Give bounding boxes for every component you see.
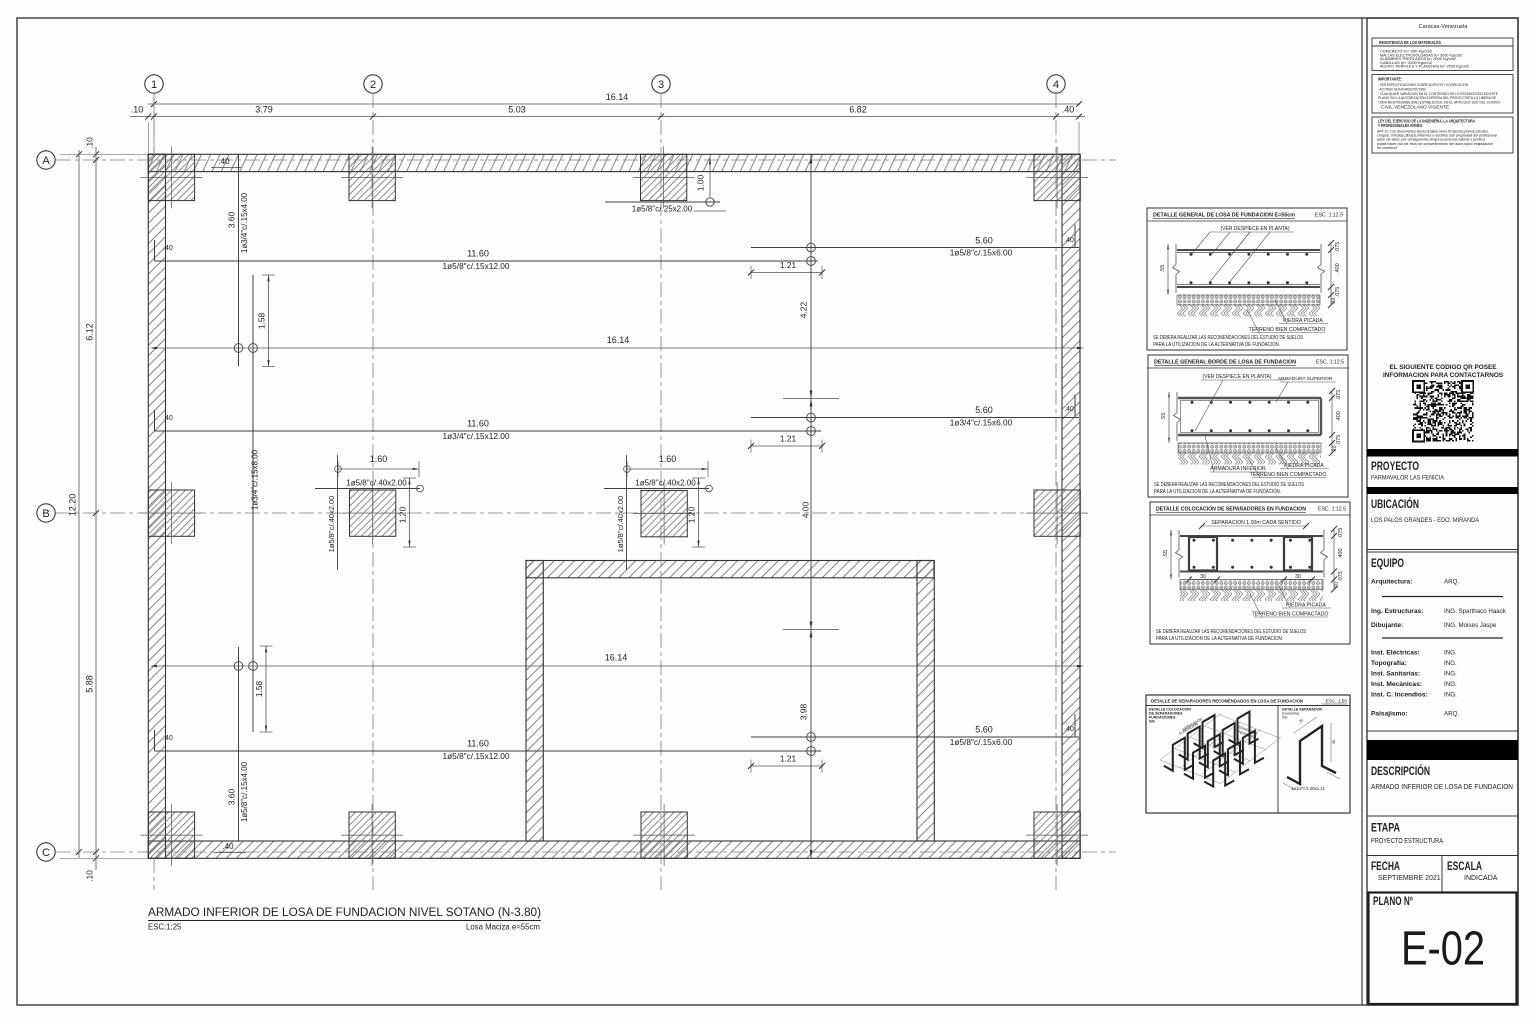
- svg-text:FECHA: FECHA: [1371, 861, 1400, 873]
- svg-text:11.60: 11.60: [467, 739, 489, 749]
- svg-text:1ø3/4"c/.15x12.00: 1ø3/4"c/.15x12.00: [442, 431, 509, 441]
- svg-text:PLANO N°: PLANO N°: [1373, 896, 1413, 908]
- svg-text:DETALLE GENERAL BORDE DE LOSA: DETALLE GENERAL BORDE DE LOSA DE FUNDACI…: [1154, 360, 1296, 366]
- svg-text:1ø5/8''c/.40x2.00: 1ø5/8''c/.40x2.00: [635, 479, 696, 488]
- svg-text:1ø5/8''c/.40x2.00: 1ø5/8''c/.40x2.00: [327, 496, 336, 553]
- svg-text:1ø3/4"c/.15x8.00: 1ø3/4"c/.15x8.00: [251, 449, 260, 510]
- svg-text:5.88: 5.88: [85, 675, 95, 693]
- svg-text:4.00: 4.00: [801, 501, 811, 518]
- svg-text:ESC:1:25: ESC:1:25: [148, 923, 182, 932]
- svg-text:PROYECTO: PROYECTO: [1371, 461, 1419, 473]
- svg-text:3.60: 3.60: [227, 211, 237, 228]
- svg-text:INDICADA: INDICADA: [1464, 875, 1498, 882]
- svg-text:1: 1: [151, 79, 157, 91]
- svg-text:SEPTIEMBRE 2021: SEPTIEMBRE 2021: [1378, 875, 1441, 882]
- svg-text:.075: .075: [1335, 287, 1341, 298]
- svg-text:2: 2: [370, 79, 376, 91]
- svg-text:UBICACIÓN: UBICACIÓN: [1371, 498, 1419, 511]
- svg-text:DESCRIPCIÓN: DESCRIPCIÓN: [1371, 765, 1430, 778]
- svg-text:LOS PALOS GRANDES - EDO. MIRAN: LOS PALOS GRANDES - EDO. MIRANDA: [1371, 517, 1480, 524]
- svg-text:ESC. 1:12.5: ESC. 1:12.5: [1318, 507, 1346, 513]
- svg-text:ING. Sparthaco Haack: ING. Sparthaco Haack: [1444, 608, 1507, 615]
- svg-text:4: 4: [1053, 79, 1059, 91]
- svg-text:TERRENO BIEN COMPACTADO: TERRENO BIEN COMPACTADO: [1249, 327, 1326, 333]
- svg-text:E-02: E-02: [1401, 922, 1485, 975]
- svg-text:6.12: 6.12: [85, 323, 95, 341]
- svg-text:PARA LA UTILIZACION DE LA ALTE: PARA LA UTILIZACION DE LA ALTERNATIVA DE…: [1153, 342, 1280, 348]
- svg-text:Losa Maciza e=55cm: Losa Maciza e=55cm: [466, 923, 540, 932]
- svg-text:1.60: 1.60: [659, 454, 677, 464]
- svg-text:ING. Moises Jaspe: ING. Moises Jaspe: [1444, 622, 1497, 629]
- svg-text:30: 30: [1295, 574, 1301, 580]
- svg-text:ESC. 1:12.5: ESC. 1:12.5: [1315, 213, 1343, 219]
- svg-text:1.58: 1.58: [254, 681, 264, 698]
- svg-text:1ø5/8"c/.15x4.00: 1ø5/8"c/.15x4.00: [240, 761, 249, 822]
- svg-text:DETALLE DE SEPARADORES RECOMEN: DETALLE DE SEPARADORES RECOMENDADOS EN L…: [1151, 699, 1303, 705]
- svg-text:.10: .10: [1332, 445, 1338, 452]
- svg-text:1ø3/4"c/.15x4.00: 1ø3/4"c/.15x4.00: [240, 192, 249, 253]
- svg-text:.40: .40: [218, 157, 230, 166]
- svg-text:PIEDRA PICADA: PIEDRA PICADA: [1284, 463, 1324, 469]
- svg-text:30: 30: [1200, 574, 1206, 580]
- svg-text:1.21: 1.21: [780, 434, 797, 444]
- svg-text:6.82: 6.82: [849, 105, 867, 115]
- svg-text:.400: .400: [1336, 411, 1342, 422]
- svg-text:ING.: ING.: [1444, 692, 1457, 699]
- svg-text:.400: .400: [1335, 263, 1341, 274]
- svg-text:ING.: ING.: [1444, 681, 1457, 688]
- svg-text:DETALLE GENERAL DE LOSA DE FUN: DETALLE GENERAL DE LOSA DE FUNDACION E=5…: [1153, 213, 1295, 219]
- svg-text:ARMADURA SUPERIOR: ARMADURA SUPERIOR: [1278, 376, 1333, 382]
- svg-text:Inst. Eléctricas:: Inst. Eléctricas:: [1371, 650, 1420, 657]
- svg-text:1.20: 1.20: [398, 506, 408, 523]
- svg-text:ING.: ING.: [1444, 671, 1457, 678]
- svg-text:ESCALA: ESCALA: [1447, 861, 1482, 873]
- svg-text:1.21: 1.21: [780, 260, 797, 270]
- svg-text:ARMADO INFERIOR DE LOSA DE FUN: ARMADO INFERIOR DE LOSA DE FUNDACION: [1371, 782, 1513, 791]
- svg-text:1ø1/2"c/1.00x1.21: 1ø1/2"c/1.00x1.21: [1291, 786, 1326, 791]
- svg-text:3.79: 3.79: [255, 105, 273, 115]
- svg-text:TERRENO BIEN COMPACTADO: TERRENO BIEN COMPACTADO: [1252, 612, 1329, 618]
- svg-text:.40: .40: [222, 842, 234, 851]
- svg-text:Caracas-Venezuela: Caracas-Venezuela: [1419, 24, 1469, 30]
- svg-text:35: 35: [1332, 740, 1336, 744]
- svg-text:en contrario".: en contrario".: [1377, 146, 1399, 150]
- svg-text:B: B: [42, 508, 49, 520]
- svg-text:IMPORTANTE:: IMPORTANTE:: [1378, 77, 1402, 82]
- svg-text:INFORMACION PARA CONTACTARNOS: INFORMACION PARA CONTACTARNOS: [1383, 372, 1504, 379]
- svg-text:ESC. 1:50: ESC. 1:50: [1326, 699, 1348, 704]
- svg-text:PIEDRA PICADA: PIEDRA PICADA: [1283, 318, 1323, 324]
- svg-text:ARQ.: ARQ.: [1444, 579, 1459, 586]
- svg-text:ARMADO INFERIOR DE LOSA DE FUN: ARMADO INFERIOR DE LOSA DE FUNDACION NIV…: [148, 905, 541, 919]
- svg-text:.40: .40: [163, 735, 173, 742]
- svg-text:ACERO, PERFILES Y PLANCHAS fy: ACERO, PERFILES Y PLANCHAS fy= 2530 Kg/c…: [1380, 64, 1470, 69]
- svg-text:11.60: 11.60: [467, 419, 489, 429]
- svg-text:Inst. Sanitarias:: Inst. Sanitarias:: [1371, 671, 1420, 678]
- svg-text:Ing. Estructuras:: Ing. Estructuras:: [1371, 608, 1423, 615]
- svg-text:S/E: S/E: [1149, 720, 1155, 724]
- svg-text:PIEDRA PICADA: PIEDRA PICADA: [1286, 603, 1326, 609]
- svg-text:5.03: 5.03: [508, 105, 526, 115]
- svg-text:C: C: [42, 847, 50, 859]
- svg-text:DETALLE COLOCACION DE SEPARADO: DETALLE COLOCACION DE SEPARADORES EN FUN…: [1156, 507, 1306, 513]
- svg-text:1ø3/4"c/.15x6.00: 1ø3/4"c/.15x6.00: [950, 418, 1013, 428]
- svg-text:ING.: ING.: [1444, 650, 1457, 657]
- svg-text:3.60: 3.60: [227, 788, 237, 805]
- svg-text:1.20: 1.20: [687, 506, 697, 523]
- svg-text:.55: .55: [1161, 413, 1167, 421]
- svg-text:.40: .40: [1062, 105, 1075, 115]
- svg-text:ESC. 1:12.5: ESC. 1:12.5: [1316, 360, 1344, 366]
- svg-text:1ø5/8''c/.40x2.00: 1ø5/8''c/.40x2.00: [616, 496, 625, 553]
- svg-text:.55: .55: [1160, 265, 1166, 273]
- svg-text:CIVIL VENEZOLANO VIGENTE: CIVIL VENEZOLANO VIGENTE: [1381, 105, 1449, 111]
- svg-text:4.22: 4.22: [799, 301, 809, 318]
- svg-text:FARMAVALOR LAS FENICIA: FARMAVALOR LAS FENICIA: [1371, 475, 1445, 482]
- svg-text:.10: .10: [85, 137, 95, 149]
- svg-text:.075: .075: [1336, 390, 1342, 401]
- svg-text:(VER DESPIECE EN PLANTA): (VER DESPIECE EN PLANTA): [1202, 374, 1271, 380]
- svg-text:.40: .40: [1064, 237, 1074, 244]
- svg-text:SE DEBERA REALIZAR LAS RECOMEN: SE DEBERA REALIZAR LAS RECOMENDACIONES D…: [1153, 335, 1304, 341]
- svg-text:3.98: 3.98: [799, 703, 809, 720]
- svg-text:RESISTENCIA DE LOS MATERIAL: RESISTENCIA DE LOS MATERIALES: [1379, 40, 1441, 45]
- svg-text:SEPARACION 1.00m CADA SENTI: SEPARACION 1.00m CADA SENTIDO: [1211, 520, 1301, 526]
- svg-text:.55: .55: [1163, 550, 1169, 558]
- svg-text:5.60: 5.60: [975, 236, 993, 246]
- svg-text:1.58: 1.58: [257, 313, 267, 330]
- svg-text:PARA LA UTILIZACION DE LA ALTE: PARA LA UTILIZACION DE LA ALTERNATIVA DE…: [1154, 489, 1281, 495]
- svg-text:A: A: [42, 155, 50, 167]
- svg-text:ARQ.: ARQ.: [1444, 711, 1459, 718]
- svg-text:EQUIPO: EQUIPO: [1371, 558, 1404, 570]
- svg-text:.40: .40: [1064, 406, 1074, 413]
- svg-text:16.14: 16.14: [606, 92, 629, 102]
- svg-text:Y PROFESIONALES AFINES.: Y PROFESIONALES AFINES.: [1378, 123, 1423, 128]
- svg-text:TERRENO BIEN COMPACTADO: TERRENO BIEN COMPACTADO: [1250, 472, 1327, 478]
- svg-text:.40: .40: [1064, 726, 1074, 733]
- svg-text:.075: .075: [1338, 571, 1344, 582]
- svg-text:1.60: 1.60: [370, 454, 388, 464]
- svg-text:1.21: 1.21: [780, 754, 797, 764]
- svg-text:ETAPA: ETAPA: [1371, 823, 1400, 835]
- svg-text:5.60: 5.60: [975, 725, 993, 735]
- svg-text:ING.: ING.: [1444, 660, 1457, 667]
- svg-text:.400: .400: [1338, 549, 1344, 560]
- svg-text:(VER DESPIECE EN PLANTA): (VER DESPIECE EN PLANTA): [1220, 226, 1289, 232]
- svg-text:5.60: 5.60: [975, 405, 993, 415]
- svg-text:3: 3: [658, 79, 664, 91]
- svg-text:16.14: 16.14: [605, 653, 628, 663]
- svg-text:PARA LA UTILIZACION DE LA ALTE: PARA LA UTILIZACION DE LA ALTERNATIVA DE…: [1156, 636, 1283, 642]
- svg-text:.40: .40: [163, 245, 173, 252]
- svg-text:SE DEBERA REALIZAR LAS RECOMEN: SE DEBERA REALIZAR LAS RECOMENDACIONES D…: [1156, 629, 1307, 635]
- svg-text:PROYECTO ESTRUCTURA: PROYECTO ESTRUCTURA: [1371, 836, 1443, 845]
- svg-text:.075: .075: [1338, 528, 1344, 539]
- svg-text:.10: .10: [1331, 297, 1337, 304]
- svg-text:1ø5/8''c/.40x2.00: 1ø5/8''c/.40x2.00: [346, 479, 407, 488]
- svg-text:Topografía:: Topografía:: [1371, 660, 1407, 667]
- svg-text:TODA RESPONSABILIDAD ESTABLECI: TODA RESPONSABILIDAD ESTABLECIDA, EN EL …: [1378, 100, 1500, 105]
- svg-text:1ø5/8"c/.15x6.00: 1ø5/8"c/.15x6.00: [950, 248, 1013, 258]
- svg-text:Inst. Mecánicas:: Inst. Mecánicas:: [1371, 681, 1422, 688]
- svg-text:1ø5/8"c/.15x12.00: 1ø5/8"c/.15x12.00: [442, 751, 509, 761]
- svg-text:Paisajismo:: Paisajismo:: [1371, 711, 1408, 718]
- svg-text:Dibujante:: Dibujante:: [1371, 622, 1403, 629]
- svg-text:Inst. C. Incendios:: Inst. C. Incendios:: [1371, 692, 1428, 699]
- svg-text:.075: .075: [1335, 242, 1341, 253]
- svg-text:1.00: 1.00: [696, 174, 706, 191]
- svg-text:16.14: 16.14: [607, 335, 630, 345]
- svg-text:.10: .10: [131, 105, 144, 115]
- svg-text:11.60: 11.60: [467, 249, 489, 259]
- svg-text:S/E: S/E: [1282, 716, 1288, 720]
- svg-text:.40: .40: [163, 415, 173, 422]
- svg-text:SE DEBERA REALIZAR LAS RECOMEN: SE DEBERA REALIZAR LAS RECOMENDACIONES D…: [1154, 482, 1305, 488]
- svg-text:1ø5/8"c/.15x12.00: 1ø5/8"c/.15x12.00: [442, 261, 509, 271]
- svg-text:Arquitectura:: Arquitectura:: [1371, 579, 1412, 586]
- svg-text:.10: .10: [1334, 582, 1340, 589]
- svg-text:.10: .10: [85, 870, 95, 882]
- svg-text:1ø5/8''c/.25x2.00: 1ø5/8''c/.25x2.00: [632, 205, 693, 214]
- svg-text:1ø5/8"c/.15x6.00: 1ø5/8"c/.15x6.00: [950, 737, 1013, 747]
- svg-text:.075: .075: [1336, 435, 1342, 446]
- svg-text:EL SIGUIENTE CODIGO QR POSEE: EL SIGUIENTE CODIGO QR POSEE: [1389, 364, 1497, 371]
